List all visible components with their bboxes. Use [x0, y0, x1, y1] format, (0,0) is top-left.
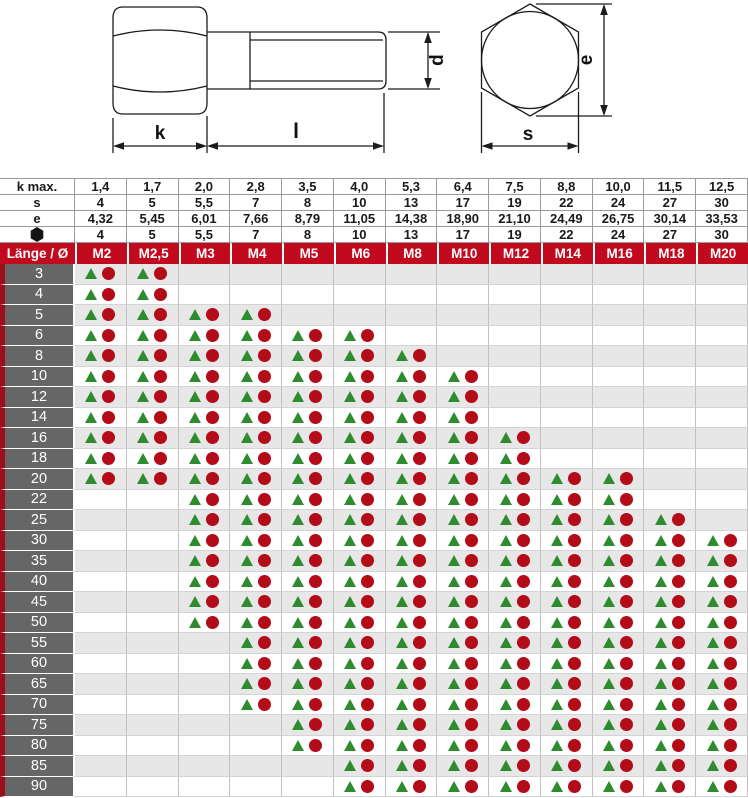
availability-cell: [75, 592, 127, 613]
length-label: 90: [0, 777, 75, 798]
spec-value: 27: [644, 195, 696, 211]
triangle-marker: [85, 432, 97, 443]
spec-value: 5,5: [179, 195, 231, 211]
spec-value: 17: [437, 227, 489, 243]
availability-cell: [696, 387, 748, 408]
triangle-marker: [241, 637, 253, 648]
availability-cell: [644, 531, 696, 552]
triangle-marker: [448, 617, 460, 628]
availability-cell: [179, 736, 231, 757]
triangle-marker: [551, 658, 563, 669]
triangle-marker: [241, 658, 253, 669]
availability-cell: [593, 531, 645, 552]
length-label: 6: [0, 326, 75, 347]
availability-cell: [179, 326, 231, 347]
availability-cell: [437, 510, 489, 531]
availability-cell: [334, 490, 386, 511]
triangle-marker: [551, 535, 563, 546]
triangle-marker: [292, 617, 304, 628]
circle-marker: [465, 534, 478, 547]
availability-cell: [75, 531, 127, 552]
dim-label-d: d: [427, 54, 448, 66]
triangle-marker: [189, 350, 201, 361]
circle-marker: [361, 554, 374, 567]
availability-cell: [127, 674, 179, 695]
availability-cell: [386, 592, 438, 613]
spec-value: 4: [75, 195, 127, 211]
availability-cell: [541, 367, 593, 388]
triangle-marker: [292, 371, 304, 382]
availability-cell: [696, 674, 748, 695]
spec-label: k max.: [0, 179, 75, 195]
circle-marker: [206, 452, 219, 465]
availability-cell: [593, 510, 645, 531]
availability-cell: [593, 346, 645, 367]
availability-cell: [282, 326, 334, 347]
availability-cell: [334, 531, 386, 552]
circle-marker: [154, 472, 167, 485]
availability-cell: [127, 326, 179, 347]
bolt-side-view: d k l: [113, 7, 448, 153]
circle-marker: [154, 452, 167, 465]
circle-marker: [154, 308, 167, 321]
triangle-marker: [241, 432, 253, 443]
triangle-marker: [241, 596, 253, 607]
spec-value: 22: [541, 195, 593, 211]
availability-cell: [230, 367, 282, 388]
triangle-marker: [655, 576, 667, 587]
length-label: 65: [0, 674, 75, 695]
availability-cell: [489, 613, 541, 634]
triangle-marker: [603, 740, 615, 751]
circle-marker: [413, 534, 426, 547]
availability-cell: [696, 695, 748, 716]
triangle-marker: [396, 576, 408, 587]
availability-cell: [179, 469, 231, 490]
triangle-marker: [500, 473, 512, 484]
availability-cell: [282, 387, 334, 408]
availability-cell: [541, 777, 593, 798]
triangle-marker: [292, 719, 304, 730]
spec-value: 8: [282, 227, 334, 243]
spec-value: 17: [437, 195, 489, 211]
triangle-marker: [448, 719, 460, 730]
availability-cell: [386, 449, 438, 470]
availability-cell: [644, 428, 696, 449]
availability-cell: [230, 674, 282, 695]
circle-marker: [361, 534, 374, 547]
availability-cell: [489, 305, 541, 326]
availability-cell: [179, 285, 231, 306]
circle-marker: [413, 698, 426, 711]
availability-cell: [127, 490, 179, 511]
triangle-marker: [603, 699, 615, 710]
triangle-marker: [344, 678, 356, 689]
circle-marker: [517, 718, 530, 731]
length-label: 50: [0, 613, 75, 634]
availability-cell: [334, 756, 386, 777]
triangle-marker: [396, 719, 408, 730]
circle-marker: [620, 595, 633, 608]
availability-cell: [386, 695, 438, 716]
circle-marker: [309, 739, 322, 752]
circle-marker: [206, 472, 219, 485]
triangle-marker: [551, 473, 563, 484]
size-header-M3: M3: [179, 243, 231, 264]
circle-marker: [465, 575, 478, 588]
triangle-marker: [344, 494, 356, 505]
circle-marker: [517, 575, 530, 588]
availability-cell: [489, 531, 541, 552]
triangle-marker: [241, 576, 253, 587]
length-row: 20: [0, 469, 748, 490]
circle-marker: [517, 677, 530, 690]
availability-cell: [644, 346, 696, 367]
availability-cell: [75, 408, 127, 429]
availability-cell: [386, 387, 438, 408]
availability-cell: [230, 326, 282, 347]
circle-marker: [361, 616, 374, 629]
length-label: 8: [0, 346, 75, 367]
triangle-marker: [292, 658, 304, 669]
triangle-marker: [344, 371, 356, 382]
triangle-marker: [448, 453, 460, 464]
triangle-marker: [189, 596, 201, 607]
availability-cell: [75, 674, 127, 695]
circle-marker: [413, 780, 426, 793]
triangle-marker: [189, 473, 201, 484]
availability-cell: [75, 736, 127, 757]
spec-row: k max.1,41,72,02,83,54,05,36,47,58,810,0…: [0, 179, 748, 195]
circle-marker: [672, 595, 685, 608]
availability-cell: [644, 613, 696, 634]
circle-marker: [724, 718, 737, 731]
availability-cell: [127, 736, 179, 757]
circle-marker: [361, 349, 374, 362]
circle-marker: [413, 657, 426, 670]
availability-cell: [489, 756, 541, 777]
spec-value: 1,4: [75, 179, 127, 195]
availability-cell: [593, 408, 645, 429]
circle-marker: [309, 370, 322, 383]
circle-marker: [724, 534, 737, 547]
availability-cell: [127, 592, 179, 613]
availability-cell: [282, 367, 334, 388]
triangle-marker: [292, 740, 304, 751]
availability-cell: [179, 367, 231, 388]
spec-value: 4,32: [75, 211, 127, 227]
triangle-marker: [551, 617, 563, 628]
triangle-marker: [500, 576, 512, 587]
availability-cell: [696, 428, 748, 449]
triangle-marker: [655, 637, 667, 648]
triangle-marker: [655, 514, 667, 525]
triangle-marker: [241, 494, 253, 505]
spec-value: 2,8: [230, 179, 282, 195]
availability-cell: [127, 572, 179, 593]
availability-cell: [437, 715, 489, 736]
availability-cell: [282, 715, 334, 736]
triangle-marker: [500, 699, 512, 710]
triangle-marker: [292, 391, 304, 402]
circle-marker: [465, 759, 478, 772]
technical-drawing: d k l e: [0, 0, 748, 178]
availability-cell: [437, 326, 489, 347]
circle-marker: [258, 657, 271, 670]
circle-marker: [517, 739, 530, 752]
availability-cell: [179, 531, 231, 552]
availability-cell: [696, 408, 748, 429]
circle-marker: [206, 390, 219, 403]
availability-cell: [179, 613, 231, 634]
availability-cell: [75, 633, 127, 654]
triangle-marker: [292, 699, 304, 710]
availability-cell: [334, 387, 386, 408]
circle-marker: [517, 513, 530, 526]
availability-cell: [644, 592, 696, 613]
availability-cell: [179, 305, 231, 326]
bolt-drawing-svg: d k l e: [0, 0, 748, 178]
triangle-marker: [655, 781, 667, 792]
availability-cell: [541, 428, 593, 449]
circle-marker: [672, 513, 685, 526]
circle-marker: [413, 513, 426, 526]
availability-cell: [437, 449, 489, 470]
availability-cell: [437, 613, 489, 634]
circle-marker: [102, 267, 115, 280]
circle-marker: [154, 390, 167, 403]
availability-cell: [75, 715, 127, 736]
availability-cell: [334, 736, 386, 757]
availability-cell: [489, 736, 541, 757]
availability-cell: [230, 428, 282, 449]
spec-value: 11,05: [334, 211, 386, 227]
availability-cell: [386, 305, 438, 326]
circle-marker: [102, 370, 115, 383]
availability-cell: [386, 674, 438, 695]
circle-marker: [568, 616, 581, 629]
circle-marker: [465, 452, 478, 465]
availability-cell: [437, 572, 489, 593]
length-label: 45: [0, 592, 75, 613]
circle-marker: [568, 534, 581, 547]
availability-cell: [489, 654, 541, 675]
availability-cell: [489, 777, 541, 798]
circle-marker: [465, 513, 478, 526]
length-row: 50: [0, 613, 748, 634]
availability-cell: [230, 387, 282, 408]
availability-cell: [179, 654, 231, 675]
availability-cell: [644, 408, 696, 429]
spec-label: e: [0, 211, 75, 227]
availability-cell: [127, 613, 179, 634]
triangle-marker: [137, 453, 149, 464]
availability-cell: [230, 551, 282, 572]
availability-cell: [334, 346, 386, 367]
availability-cell: [282, 551, 334, 572]
circle-marker: [568, 780, 581, 793]
spec-label-hex: [0, 227, 75, 243]
length-row: 3: [0, 264, 748, 285]
triangle-marker: [344, 330, 356, 341]
circle-marker: [620, 575, 633, 588]
triangle-marker: [551, 596, 563, 607]
availability-cell: [75, 367, 127, 388]
triangle-marker: [551, 678, 563, 689]
spec-value: 19: [489, 227, 541, 243]
size-header-M18: M18: [644, 243, 696, 264]
triangle-marker: [241, 699, 253, 710]
circle-marker: [620, 698, 633, 711]
availability-cell: [489, 510, 541, 531]
availability-cell: [593, 592, 645, 613]
availability-cell: [437, 531, 489, 552]
availability-cell: [386, 715, 438, 736]
triangle-marker: [292, 432, 304, 443]
length-row: 55: [0, 633, 748, 654]
triangle-marker: [241, 350, 253, 361]
triangle-marker: [551, 555, 563, 566]
availability-cell: [334, 551, 386, 572]
circle-marker: [413, 759, 426, 772]
availability-cell: [127, 346, 179, 367]
availability-cell: [489, 674, 541, 695]
circle-marker: [672, 739, 685, 752]
availability-cell: [644, 449, 696, 470]
availability-cell: [75, 777, 127, 798]
spec-value: 14,38: [386, 211, 438, 227]
availability-cell: [127, 531, 179, 552]
availability-cell: [386, 551, 438, 572]
length-label: 14: [0, 408, 75, 429]
length-label: 12: [0, 387, 75, 408]
availability-cell: [489, 490, 541, 511]
triangle-marker: [500, 596, 512, 607]
availability-cell: [127, 387, 179, 408]
circle-marker: [258, 452, 271, 465]
circle-marker: [309, 493, 322, 506]
circle-marker: [517, 759, 530, 772]
availability-cell: [282, 695, 334, 716]
triangle-marker: [551, 576, 563, 587]
triangle-marker: [655, 760, 667, 771]
availability-cell: [75, 695, 127, 716]
availability-cell: [489, 695, 541, 716]
triangle-marker: [500, 453, 512, 464]
circle-marker: [361, 431, 374, 444]
availability-cell: [644, 367, 696, 388]
triangle-marker: [292, 596, 304, 607]
triangle-marker: [551, 514, 563, 525]
circle-marker: [672, 554, 685, 567]
triangle-marker: [448, 596, 460, 607]
circle-marker: [102, 329, 115, 342]
circle-marker: [724, 616, 737, 629]
availability-cell: [334, 572, 386, 593]
length-row: 12: [0, 387, 748, 408]
circle-marker: [154, 288, 167, 301]
spec-value: 6,4: [437, 179, 489, 195]
length-label: 30: [0, 531, 75, 552]
triangle-marker: [500, 781, 512, 792]
availability-cell: [230, 715, 282, 736]
availability-cell: [230, 264, 282, 285]
spec-value: 24: [593, 227, 645, 243]
triangle-marker: [241, 453, 253, 464]
length-label: 60: [0, 654, 75, 675]
circle-marker: [206, 349, 219, 362]
availability-cell: [282, 469, 334, 490]
availability-cell: [644, 654, 696, 675]
triangle-marker: [396, 371, 408, 382]
availability-cell: [334, 469, 386, 490]
availability-cell: [696, 592, 748, 613]
availability-cell: [179, 264, 231, 285]
size-header-M16: M16: [593, 243, 645, 264]
availability-cell: [696, 736, 748, 757]
availability-cell: [386, 428, 438, 449]
availability-cell: [230, 531, 282, 552]
availability-cell: [230, 654, 282, 675]
availability-cell: [282, 285, 334, 306]
circle-marker: [206, 513, 219, 526]
triangle-marker: [344, 596, 356, 607]
length-row: 4: [0, 285, 748, 306]
size-header-M4: M4: [230, 243, 282, 264]
spec-value: 5,5: [179, 227, 231, 243]
triangle-marker: [448, 740, 460, 751]
triangle-marker: [344, 637, 356, 648]
triangle-marker: [707, 740, 719, 751]
circle-marker: [517, 472, 530, 485]
availability-cell: [127, 428, 179, 449]
availability-cell: [282, 531, 334, 552]
triangle-marker: [603, 637, 615, 648]
triangle-marker: [292, 330, 304, 341]
triangle-marker: [189, 309, 201, 320]
triangle-marker: [137, 371, 149, 382]
availability-cell: [127, 777, 179, 798]
circle-marker: [568, 698, 581, 711]
triangle-marker: [500, 760, 512, 771]
triangle-marker: [500, 535, 512, 546]
triangle-marker: [655, 658, 667, 669]
size-header-M2_5: M2,5: [127, 243, 179, 264]
circle-marker: [724, 657, 737, 670]
triangle-marker: [396, 740, 408, 751]
triangle-marker: [344, 473, 356, 484]
availability-cell: [696, 490, 748, 511]
spec-value: 7: [230, 227, 282, 243]
triangle-marker: [85, 330, 97, 341]
circle-marker: [517, 431, 530, 444]
triangle-marker: [396, 596, 408, 607]
triangle-marker: [241, 678, 253, 689]
circle-marker: [568, 472, 581, 485]
availability-cell: [334, 285, 386, 306]
availability-cell: [489, 715, 541, 736]
availability-cell: [437, 654, 489, 675]
triangle-marker: [344, 658, 356, 669]
length-row: 75: [0, 715, 748, 736]
size-header-M8: M8: [386, 243, 438, 264]
availability-cell: [489, 428, 541, 449]
availability-cell: [75, 756, 127, 777]
availability-cell: [334, 264, 386, 285]
circle-marker: [413, 677, 426, 690]
circle-marker: [672, 698, 685, 711]
triangle-marker: [603, 596, 615, 607]
